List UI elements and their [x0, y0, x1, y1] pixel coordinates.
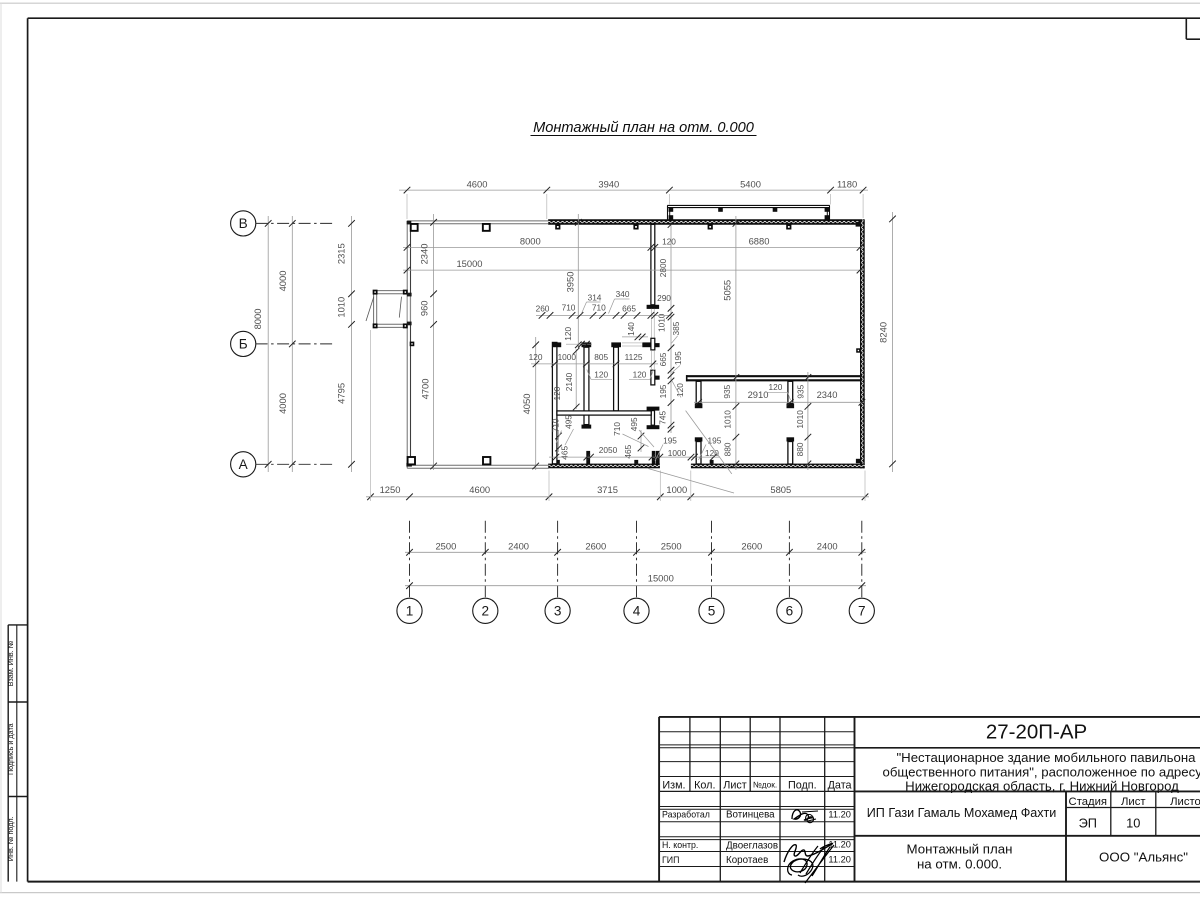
svg-text:710: 710: [562, 303, 576, 313]
svg-text:1: 1: [406, 603, 414, 618]
svg-text:2140: 2140: [564, 372, 574, 391]
svg-text:общественного питания", распол: общественного питания", расположенное по…: [883, 765, 1200, 780]
svg-text:4795: 4795: [336, 383, 347, 404]
svg-text:4: 4: [633, 603, 641, 618]
svg-text:5055: 5055: [722, 280, 733, 301]
svg-text:120: 120: [529, 352, 543, 362]
svg-text:Инв. № подл.: Инв. № подл.: [6, 816, 15, 861]
svg-text:Монтажный план: Монтажный план: [907, 841, 1013, 856]
svg-text:15000: 15000: [456, 258, 482, 269]
svg-text:11.20: 11.20: [828, 855, 851, 865]
svg-text:805: 805: [594, 352, 608, 362]
svg-text:2500: 2500: [435, 540, 456, 551]
svg-text:290: 290: [657, 293, 671, 303]
svg-text:27-20П-АР: 27-20П-АР: [986, 721, 1087, 744]
svg-text:Вотинцева: Вотинцева: [726, 810, 775, 821]
svg-text:4000: 4000: [277, 271, 288, 292]
svg-text:Лист: Лист: [723, 779, 747, 791]
svg-text:465: 465: [623, 444, 633, 458]
svg-text:745: 745: [657, 410, 667, 424]
svg-text:В: В: [239, 216, 248, 231]
svg-text:120: 120: [662, 237, 676, 247]
svg-text:495: 495: [563, 415, 573, 429]
svg-text:№док.: №док.: [753, 780, 777, 790]
svg-text:Лист: Лист: [1121, 796, 1146, 808]
svg-text:465: 465: [560, 445, 570, 459]
svg-text:на отм. 0.000.: на отм. 0.000.: [917, 856, 1002, 871]
svg-text:Взам. Инв. №: Взам. Инв. №: [6, 640, 15, 686]
svg-text:1010: 1010: [722, 410, 732, 429]
svg-text:Нижегородская область, г. Нижн: Нижегородская область, г. Нижний Новгоро…: [905, 778, 1179, 793]
svg-text:710: 710: [592, 303, 606, 313]
svg-text:Дата: Дата: [828, 779, 852, 791]
svg-text:195: 195: [707, 436, 721, 446]
svg-text:8240: 8240: [877, 322, 888, 343]
svg-text:385: 385: [671, 321, 681, 335]
svg-text:1125: 1125: [625, 352, 643, 362]
svg-text:"Нестационарное здание мобильн: "Нестационарное здание мобильного павиль…: [897, 750, 1197, 765]
svg-text:5: 5: [708, 603, 716, 618]
svg-text:2400: 2400: [508, 540, 529, 551]
svg-text:8000: 8000: [520, 235, 541, 246]
svg-text:1000: 1000: [666, 484, 687, 495]
svg-text:3950: 3950: [565, 272, 576, 293]
svg-text:Коротаев: Коротаев: [726, 855, 768, 866]
svg-text:665: 665: [658, 352, 668, 366]
svg-text:4000: 4000: [277, 393, 288, 414]
svg-text:ЭП: ЭП: [1079, 815, 1097, 830]
svg-text:2340: 2340: [418, 244, 429, 265]
svg-text:Двоеглазов: Двоеглазов: [726, 840, 778, 851]
svg-text:10: 10: [1126, 815, 1140, 830]
svg-text:Разработал: Разработал: [662, 810, 710, 820]
svg-text:1010: 1010: [657, 313, 667, 332]
svg-text:4600: 4600: [467, 178, 488, 189]
svg-text:2910: 2910: [748, 389, 769, 400]
svg-text:2600: 2600: [741, 540, 762, 551]
svg-text:120: 120: [768, 382, 782, 392]
svg-text:1010: 1010: [795, 410, 805, 429]
svg-text:880: 880: [722, 442, 732, 456]
svg-text:1000: 1000: [668, 448, 687, 458]
svg-text:5805: 5805: [770, 484, 791, 495]
svg-text:495: 495: [629, 417, 639, 431]
svg-text:710: 710: [612, 422, 622, 436]
svg-text:3940: 3940: [598, 178, 619, 189]
svg-text:Изм.: Изм.: [662, 779, 685, 791]
svg-text:1010: 1010: [336, 297, 347, 318]
svg-text:2340: 2340: [817, 389, 838, 400]
svg-text:Подпись и дата: Подпись и дата: [6, 723, 15, 775]
svg-text:195: 195: [673, 351, 683, 365]
svg-text:3: 3: [554, 603, 562, 618]
svg-text:314: 314: [588, 292, 602, 302]
svg-text:2315: 2315: [336, 243, 347, 264]
svg-text:А: А: [239, 457, 249, 472]
svg-text:120: 120: [633, 369, 647, 379]
svg-text:140: 140: [626, 322, 636, 336]
svg-text:3715: 3715: [597, 484, 618, 495]
svg-text:Н. контр.: Н. контр.: [662, 840, 698, 850]
svg-text:1180: 1180: [837, 178, 857, 189]
svg-text:Стадия: Стадия: [1069, 796, 1108, 808]
svg-text:120: 120: [594, 369, 608, 379]
svg-text:880: 880: [795, 442, 805, 456]
svg-text:2500: 2500: [661, 540, 682, 551]
svg-text:935: 935: [795, 384, 805, 398]
svg-text:4700: 4700: [420, 379, 431, 400]
svg-text:2: 2: [482, 603, 490, 618]
svg-text:Монтажный план на отм. 0.000: Монтажный план на отм. 0.000: [533, 120, 754, 136]
svg-text:120: 120: [552, 386, 562, 400]
svg-text:195: 195: [658, 384, 668, 398]
svg-text:ООО "Альянс": ООО "Альянс": [1099, 850, 1188, 865]
svg-text:935: 935: [722, 384, 732, 398]
svg-text:195: 195: [663, 435, 677, 445]
svg-text:2800: 2800: [658, 258, 668, 277]
svg-text:8000: 8000: [252, 309, 263, 330]
svg-text:11.20: 11.20: [828, 810, 851, 820]
svg-text:2600: 2600: [585, 540, 606, 551]
svg-text:4050: 4050: [521, 394, 532, 415]
svg-text:15000: 15000: [648, 572, 674, 583]
svg-text:5400: 5400: [740, 178, 761, 189]
svg-text:ГИП: ГИП: [662, 855, 679, 865]
svg-text:960: 960: [418, 300, 429, 316]
svg-text:4600: 4600: [469, 484, 490, 495]
svg-text:6: 6: [786, 603, 794, 618]
svg-text:340: 340: [616, 289, 630, 299]
svg-text:Б: Б: [239, 337, 248, 352]
svg-text:Листов: Листов: [1170, 796, 1200, 808]
svg-text:120: 120: [563, 326, 573, 340]
svg-text:7: 7: [858, 603, 866, 618]
svg-text:6880: 6880: [749, 235, 770, 246]
svg-text:665: 665: [622, 303, 636, 313]
svg-text:1250: 1250: [380, 484, 401, 495]
svg-text:ИП Гази Гамаль Мохамед Фахти: ИП Гази Гамаль Мохамед Фахти: [867, 806, 1057, 820]
svg-text:Подп.: Подп.: [788, 779, 817, 791]
svg-text:2400: 2400: [817, 540, 838, 551]
svg-text:Кол.: Кол.: [694, 779, 715, 791]
svg-text:260: 260: [536, 303, 550, 313]
svg-text:2050: 2050: [599, 445, 618, 455]
